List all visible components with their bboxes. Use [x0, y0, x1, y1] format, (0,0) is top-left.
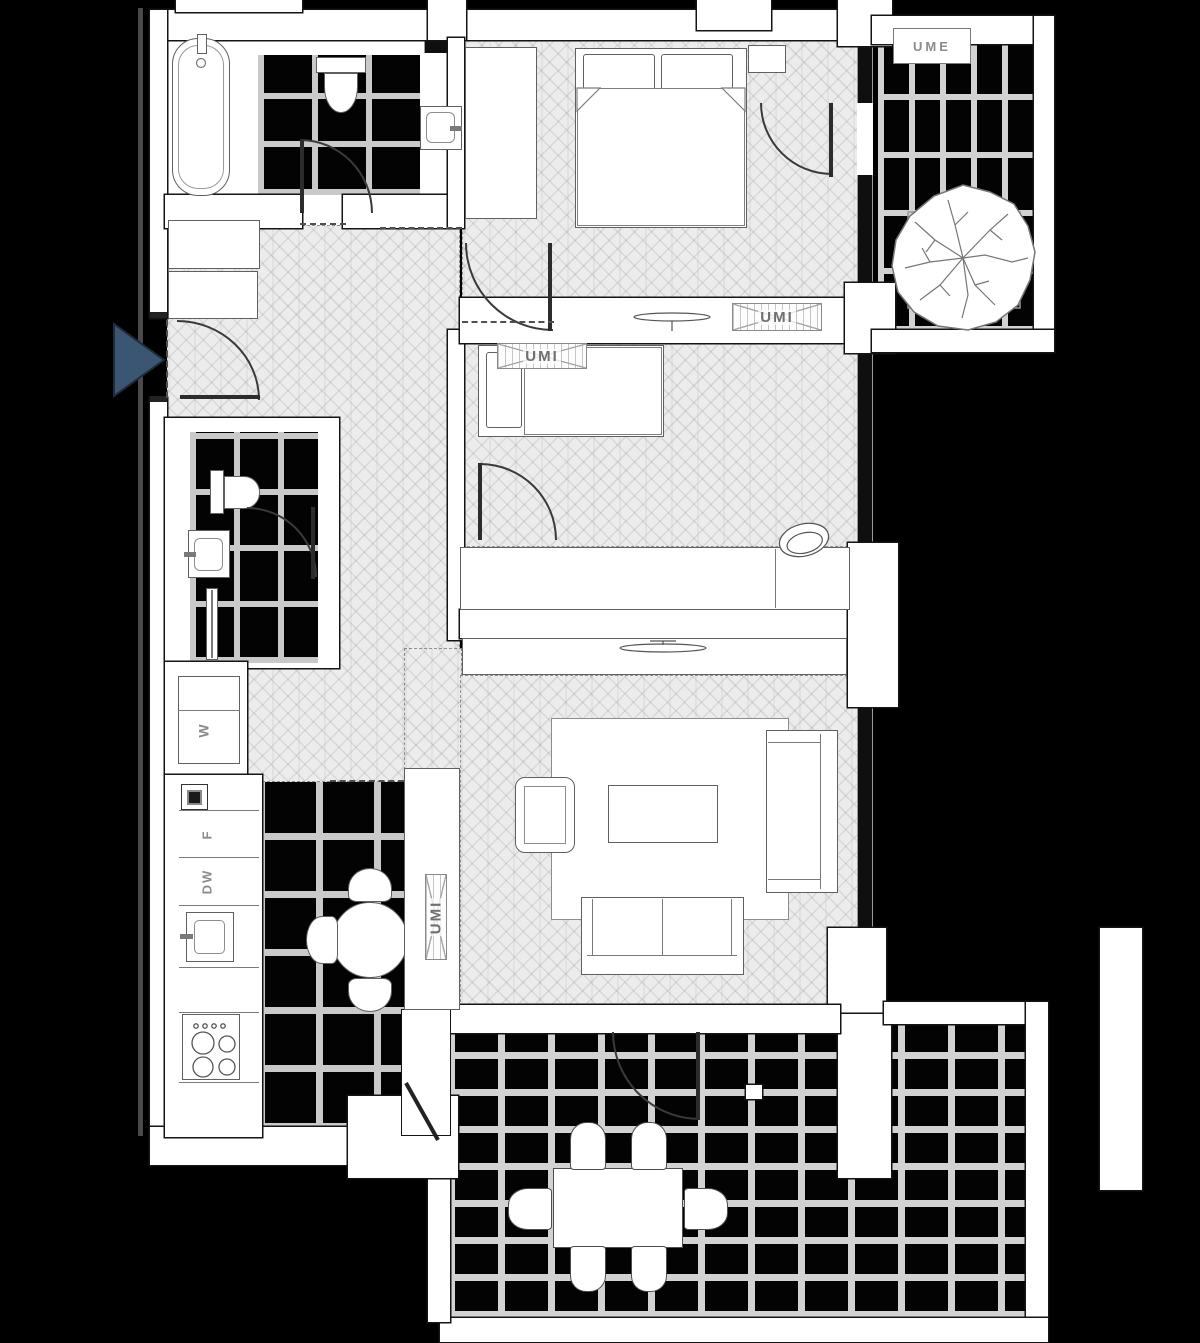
dishwasher-label: DW	[168, 858, 246, 904]
terrace-door-leaf	[696, 1032, 700, 1120]
bathroom-door-leaf	[300, 139, 304, 213]
counter-line3	[179, 905, 259, 906]
entry-jamb-top	[150, 312, 167, 318]
wc-door-leaf	[311, 507, 315, 579]
sofa-bottom-cushion-divider	[662, 899, 663, 955]
kitchen-appliance-core	[187, 790, 202, 805]
kitchen-table	[332, 902, 408, 978]
sofa-right	[766, 730, 838, 893]
bedroom1-wardrobe	[465, 47, 537, 219]
pier-desk	[848, 543, 898, 707]
sofa-right-arm-bottom	[768, 879, 820, 880]
terrace-top-wall-right	[884, 1002, 1048, 1024]
entry-cabinet-upper	[168, 220, 260, 269]
wall-stub-top2	[428, 0, 466, 40]
neighbor-wall-bar	[1100, 928, 1142, 1190]
cooktop	[182, 1014, 240, 1080]
terrace-left-wall	[428, 1176, 450, 1322]
wardrobe-unit-divider-label: UMI	[758, 310, 796, 325]
kitchen-chair-top	[348, 868, 392, 902]
kitchen-tap	[180, 934, 193, 939]
living-bottom-wall	[428, 1005, 840, 1033]
kitchen-chair-left	[306, 916, 338, 964]
wardrobe-unit-divider: UMI	[732, 303, 822, 331]
balcony-bottom-wall	[872, 330, 1054, 352]
balcony-deck	[878, 44, 1034, 332]
bathtub-inner	[178, 45, 224, 189]
bedroom1-window-lower	[857, 175, 873, 285]
left-wall-upper	[150, 10, 167, 318]
balcony-door-leaf	[829, 103, 833, 177]
dining-nook-floor	[404, 648, 462, 770]
entry-cabinet-lower	[168, 271, 258, 319]
terrace-passage	[402, 1010, 450, 1135]
terrace-chair-bottom-left	[570, 1246, 606, 1292]
toilet-bowl-wc	[224, 476, 260, 509]
kitchen-sink-basin	[194, 920, 225, 954]
bedroom1-blanket	[577, 88, 745, 226]
entry-jamb-bottom	[150, 396, 167, 402]
wardrobe-unit-bedroom2: UMI	[497, 343, 587, 369]
bedroom1-window	[857, 42, 873, 103]
pier-living-corner	[828, 928, 886, 1016]
bedroom2-door-leaf	[478, 463, 482, 540]
coffee-table	[608, 785, 718, 843]
wardrobe-unit-hall-label: UMI	[429, 898, 444, 936]
counter-line6	[179, 1082, 259, 1083]
bedroom2-desk-divider	[775, 549, 776, 608]
terrace-chair-bottom-right	[631, 1246, 667, 1292]
wall-stub-top1	[176, 0, 302, 12]
fridge-label: F	[168, 812, 246, 856]
balcony-right-wall	[1034, 16, 1054, 352]
terrace-bottom-wall	[440, 1318, 1048, 1342]
toilet-tank-bathroom	[316, 57, 366, 73]
terrace-deck	[448, 1024, 1026, 1318]
terrace-chair-left	[508, 1188, 552, 1230]
toilet-tank-wc	[210, 470, 224, 514]
living-room-window	[857, 705, 873, 928]
balcony-label-text: UME	[913, 39, 951, 54]
wc-tap	[184, 552, 196, 557]
terrace-wall-box	[746, 1085, 762, 1099]
threshold-bathroom	[300, 223, 346, 225]
wardrobe-unit-bedroom2-label: UMI	[523, 349, 561, 364]
threshold-bedroom2	[462, 321, 554, 323]
balcony-label: UME	[893, 28, 971, 64]
threshold-kitchen	[330, 780, 404, 782]
site-boundary-line	[138, 8, 143, 1136]
mid-wall-band	[460, 610, 873, 638]
terrace-chair-top-left	[570, 1122, 606, 1170]
armchair-seat	[524, 786, 566, 844]
threshold-corridor	[380, 227, 462, 229]
dishwasher-label-text: DW	[199, 868, 214, 894]
counter-line4	[179, 967, 259, 968]
sofa-bottom-back-line	[587, 955, 737, 956]
wall-stub-top3	[697, 0, 771, 30]
bedroom2-window	[857, 352, 873, 543]
wc-radiator-line	[211, 590, 213, 658]
wc-basin	[194, 538, 223, 571]
terrace-chair-right	[684, 1188, 728, 1230]
floor-plan: W F DW UMI UMI	[0, 0, 1200, 1343]
bedroom1-door-leaf	[548, 243, 552, 331]
tv-bench	[462, 638, 847, 675]
terrace-chair-top-right	[631, 1122, 667, 1170]
vanity-tap	[450, 126, 462, 131]
fridge-label-text: F	[199, 829, 214, 839]
terrace-right-wall	[1026, 1002, 1048, 1340]
sofa-right-arm-top	[768, 742, 820, 743]
bedroom1-nightstand	[748, 45, 786, 73]
washer-label-text: W	[196, 722, 212, 737]
balcony-door-opening	[857, 103, 873, 175]
sofa-bottom-arm-left	[592, 899, 593, 955]
bathtub-faucet	[197, 34, 207, 54]
top-wall	[150, 10, 890, 40]
bedroom2-desk	[460, 547, 850, 610]
entry-door-leaf	[180, 395, 260, 399]
pier-terrace	[838, 1014, 891, 1178]
terrace-table	[553, 1168, 683, 1248]
sofa-bottom-arm-right	[731, 899, 732, 955]
sofa-right-back-line	[820, 734, 821, 889]
threshold-entry	[166, 320, 168, 398]
wardrobe-unit-hall: UMI	[425, 874, 447, 960]
washer-label: W	[172, 700, 236, 760]
